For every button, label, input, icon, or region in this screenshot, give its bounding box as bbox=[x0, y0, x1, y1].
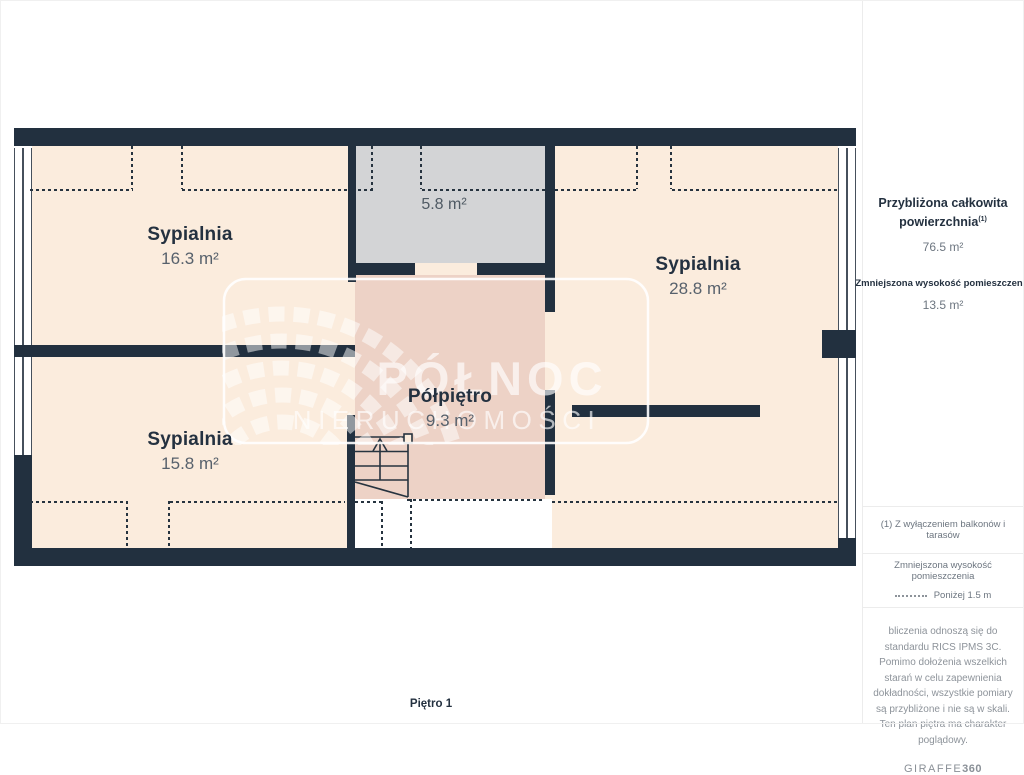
reduced-height-boundary bbox=[182, 189, 347, 191]
wall bbox=[838, 538, 856, 550]
footnote-box: (1) Z wyłączeniem balkonów i tarasów bbox=[863, 506, 1023, 553]
room-label-bedroom-2: Sypialnia 28.8 m² bbox=[655, 254, 740, 299]
room-area: 28.8 m² bbox=[655, 279, 740, 299]
floor-stair-void bbox=[355, 499, 552, 548]
reduced-height-boundary bbox=[358, 189, 373, 191]
room-label-half-landing: Półpiętro 9.3 m² bbox=[408, 386, 492, 431]
room-area: 5.8 m² bbox=[421, 196, 466, 214]
dashed-line-swatch bbox=[895, 595, 927, 597]
info-sidebar: Przybliżona całkowita powierzchnia(1) 76… bbox=[862, 0, 1023, 724]
footnote-text: (1) Z wyłączeniem balkonów i tarasów bbox=[863, 519, 1023, 541]
window bbox=[14, 357, 32, 455]
reduced-height-boundary bbox=[636, 146, 638, 189]
wall bbox=[572, 405, 760, 417]
reduced-height-boundary bbox=[131, 146, 133, 189]
wall bbox=[477, 263, 555, 275]
reduced-height-boundary bbox=[420, 146, 422, 189]
reduced-height-boundary bbox=[407, 499, 545, 501]
staircase bbox=[347, 430, 417, 505]
reduced-height-value: 13.5 m² bbox=[923, 298, 964, 312]
floor-caption: Piętro 1 bbox=[0, 698, 862, 710]
legend-value: Poniżej 1.5 m bbox=[934, 590, 992, 601]
brand-number: 360 bbox=[962, 763, 982, 775]
disclaimer-text: bliczenia odnoszą się do standardu RICS … bbox=[872, 624, 1014, 748]
total-area-value: 76.5 m² bbox=[923, 240, 964, 254]
legend-box: Zmniejszona wysokość pomieszczenia Poniż… bbox=[863, 553, 1023, 608]
reduced-height-boundary bbox=[422, 189, 545, 191]
wall bbox=[822, 330, 856, 358]
brand-name: GIRAFFE bbox=[904, 763, 962, 775]
room-area: 15.8 m² bbox=[147, 454, 232, 474]
room-label-bedroom-1: Sypialnia 16.3 m² bbox=[147, 224, 232, 269]
disclaimer-box: bliczenia odnoszą się do standardu RICS … bbox=[863, 608, 1023, 775]
reduced-height-boundary bbox=[672, 189, 838, 191]
reduced-height-boundary bbox=[181, 146, 183, 189]
reduced-height-boundary bbox=[30, 501, 128, 503]
reduced-height-boundary bbox=[170, 501, 345, 503]
window bbox=[838, 148, 856, 330]
reduced-height-boundary bbox=[371, 146, 373, 189]
wall bbox=[14, 128, 856, 146]
wall bbox=[545, 146, 555, 312]
room-area: 16.3 m² bbox=[147, 249, 232, 269]
area-summary: Przybliżona całkowita powierzchnia(1) 76… bbox=[863, 0, 1023, 506]
legend-row: Poniżej 1.5 m bbox=[895, 590, 992, 601]
room-area: 9.3 m² bbox=[408, 411, 492, 431]
giraffe360-logo: GIRAFFE360 bbox=[872, 763, 1014, 775]
window bbox=[838, 358, 856, 538]
reduced-height-boundary bbox=[168, 501, 170, 548]
reduced-height-boundary bbox=[552, 501, 838, 503]
reduced-height-boundary bbox=[670, 146, 672, 189]
room-name: Sypialnia bbox=[147, 224, 232, 246]
reduced-height-boundary bbox=[30, 189, 133, 191]
reduced-height-label: Zmniejszona wysokość pomieszczenia bbox=[855, 278, 1024, 289]
floor-plan-page: { "plan": { "floor_label": "Piętro 1", "… bbox=[0, 0, 1024, 724]
floor-plan: PÓŁNOC NIERUCHOMOŚCI Sypialnia 16.3 m² S… bbox=[0, 0, 862, 724]
reduced-height-boundary bbox=[555, 189, 638, 191]
wall bbox=[14, 548, 856, 566]
wall bbox=[348, 146, 356, 282]
reduced-height-boundary bbox=[381, 501, 383, 548]
wall bbox=[14, 345, 355, 357]
room-label-low-area: 5.8 m² bbox=[421, 196, 466, 214]
window bbox=[14, 148, 32, 345]
total-area-label: Przybliżona całkowita powierzchnia(1) bbox=[863, 194, 1023, 230]
total-area-label-text: Przybliżona całkowita powierzchnia bbox=[878, 196, 1007, 228]
room-name: Sypialnia bbox=[147, 429, 232, 451]
room-name: Sypialnia bbox=[655, 254, 740, 276]
total-area-footnote-marker: (1) bbox=[978, 215, 987, 222]
reduced-height-boundary bbox=[410, 499, 412, 548]
wall bbox=[545, 390, 555, 495]
reduced-height-boundary bbox=[126, 501, 128, 548]
room-name: Półpiętro bbox=[408, 386, 492, 408]
legend-title: Zmniejszona wysokość pomieszczenia bbox=[863, 560, 1023, 582]
wall bbox=[348, 263, 415, 275]
room-label-bedroom-3: Sypialnia 15.8 m² bbox=[147, 429, 232, 474]
